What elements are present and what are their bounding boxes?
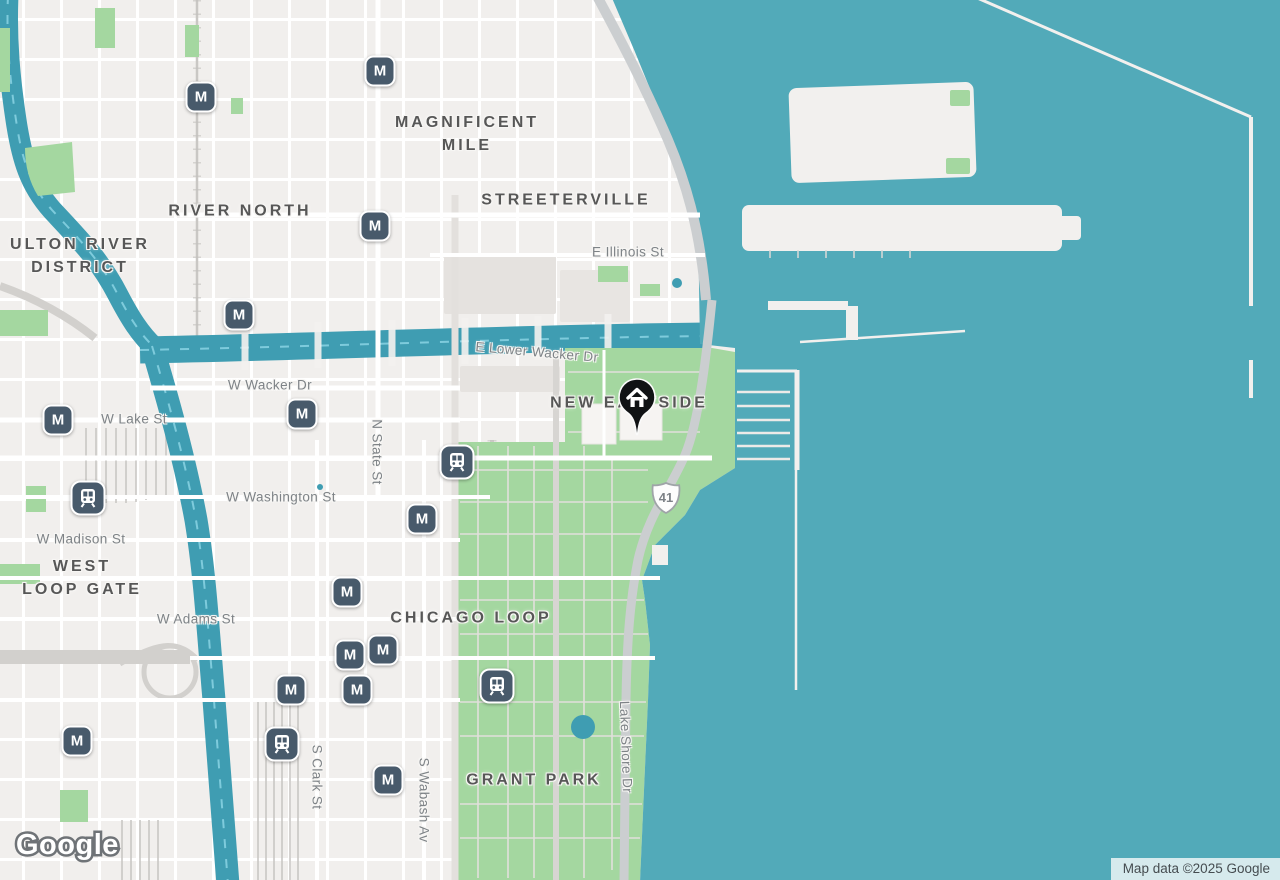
house-door bbox=[635, 401, 640, 408]
metro-glyph: M bbox=[341, 585, 354, 600]
yacht-club bbox=[652, 545, 668, 565]
metro-station-icon[interactable]: M bbox=[407, 504, 438, 535]
metro-glyph: M bbox=[382, 773, 395, 788]
map-attribution: Map data ©2025 Google bbox=[1111, 858, 1280, 880]
route-41-shield: 41 bbox=[651, 482, 681, 519]
metro-station-icon[interactable]: M bbox=[368, 635, 399, 666]
home-location-pin[interactable] bbox=[617, 377, 657, 444]
metro-glyph: M bbox=[195, 90, 208, 105]
metro-glyph: M bbox=[377, 643, 390, 658]
metro-station-icon[interactable]: M bbox=[360, 211, 391, 242]
metro-glyph: M bbox=[233, 308, 246, 323]
train-icon bbox=[78, 488, 99, 509]
home-pin-icon bbox=[617, 377, 657, 439]
google-logo[interactable]: Google bbox=[12, 823, 142, 870]
metro-station-icon[interactable]: M bbox=[43, 405, 74, 436]
google-logo-text: Google bbox=[16, 829, 119, 861]
metro-station-icon[interactable]: M bbox=[276, 675, 307, 706]
navy-pier bbox=[742, 205, 1062, 251]
map-canvas[interactable]: MAGNIFICENT MILE RIVER NORTH ULTON RIVER… bbox=[0, 0, 1280, 880]
metro-glyph: M bbox=[374, 64, 387, 79]
metro-station-icon[interactable]: M bbox=[287, 399, 318, 430]
rail-station-icon[interactable] bbox=[71, 481, 106, 516]
metro-glyph: M bbox=[351, 683, 364, 698]
train-icon bbox=[487, 676, 508, 697]
rail-station-icon[interactable] bbox=[265, 727, 300, 762]
metro-station-icon[interactable]: M bbox=[365, 56, 396, 87]
metro-glyph: M bbox=[296, 407, 309, 422]
metro-glyph: M bbox=[52, 413, 65, 428]
rail-station-icon[interactable] bbox=[440, 445, 475, 480]
metro-station-icon[interactable]: M bbox=[342, 675, 373, 706]
train-icon bbox=[447, 452, 468, 473]
metro-station-icon[interactable]: M bbox=[335, 640, 366, 671]
metro-glyph: M bbox=[71, 734, 84, 749]
metro-station-icon[interactable]: M bbox=[332, 577, 363, 608]
metro-station-icon[interactable]: M bbox=[62, 726, 93, 757]
metro-station-icon[interactable]: M bbox=[224, 300, 255, 331]
metro-glyph: M bbox=[285, 683, 298, 698]
buckingham-pond bbox=[571, 715, 595, 739]
metro-station-icon[interactable]: M bbox=[373, 765, 404, 796]
metro-glyph: M bbox=[416, 512, 429, 527]
rail-station-icon[interactable] bbox=[480, 669, 515, 704]
train-icon bbox=[272, 734, 293, 755]
metro-glyph: M bbox=[344, 648, 357, 663]
metro-glyph: M bbox=[369, 219, 382, 234]
metro-station-icon[interactable]: M bbox=[186, 82, 217, 113]
route-41-number: 41 bbox=[659, 490, 673, 505]
